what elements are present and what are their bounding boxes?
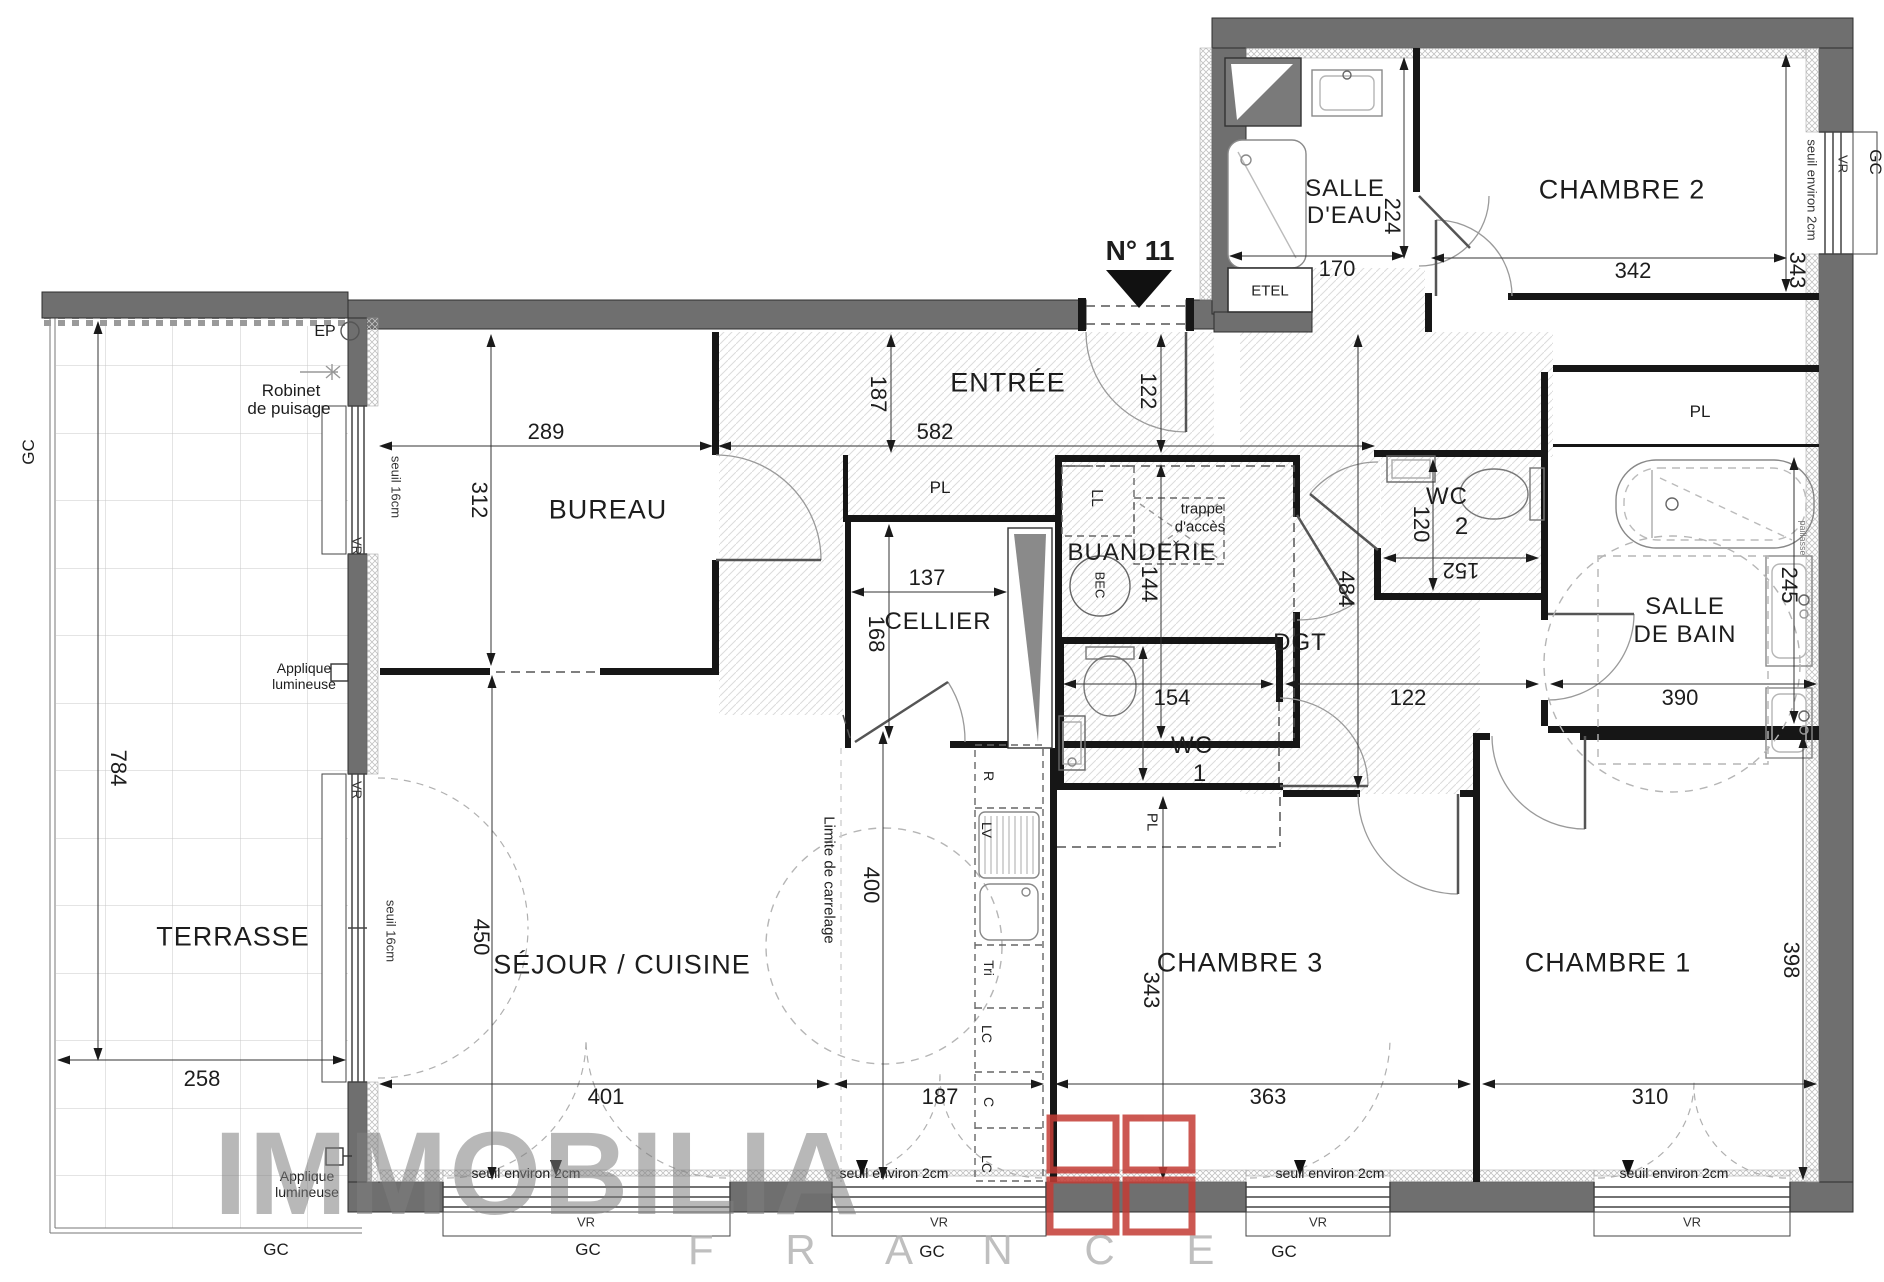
room-label-wc1-number: 1 xyxy=(1193,760,1207,788)
room-label-cellier: CELLIER xyxy=(884,608,991,636)
appliance-label-r: R xyxy=(981,771,997,781)
trappe-label-2: d'accès xyxy=(1175,519,1225,536)
seuil2-ch1: seuil environ 2cm xyxy=(1620,1165,1729,1181)
dim-400: 400 xyxy=(858,867,884,904)
appliance-label-c: C xyxy=(981,1097,997,1107)
dim-484: 484 xyxy=(1333,571,1359,608)
ep-label: EP xyxy=(314,323,335,341)
room-label-salle-deau-1: SALLE xyxy=(1305,175,1385,203)
room-label-wc2-number: 2 xyxy=(1455,513,1469,541)
room-label-dgt: DGT xyxy=(1273,629,1327,657)
dim-144: 144 xyxy=(1136,566,1162,603)
dim-258: 258 xyxy=(184,1066,221,1092)
dim-122-entree: 122 xyxy=(1135,373,1161,410)
closet-label-pl-sdb: PL xyxy=(1690,402,1711,422)
dim-398: 398 xyxy=(1778,942,1804,979)
dim-312: 312 xyxy=(466,482,492,519)
robinet-label-2: de puisage xyxy=(247,399,330,419)
watermark-brand: IMMOBILIA xyxy=(214,1106,861,1242)
dim-170: 170 xyxy=(1319,256,1356,282)
dim-343-ch2: 343 xyxy=(1784,252,1810,289)
gc-left: GC xyxy=(19,439,39,465)
dim-187-bottom: 187 xyxy=(922,1084,959,1110)
appliance-label-tri: Tri xyxy=(981,960,997,976)
seuil16-bureau: seuil 16cm xyxy=(389,456,404,518)
gc-bottom-ch3: GC xyxy=(1271,1242,1297,1262)
room-label-chambre2: CHAMBRE 2 xyxy=(1539,175,1706,206)
closet-label-pl-entree: PL xyxy=(930,478,951,498)
dim-137: 137 xyxy=(909,565,946,591)
appliance-label-lc2: LC xyxy=(979,1155,995,1173)
dim-343-ch3: 343 xyxy=(1138,972,1164,1009)
trappe-x-marker: × xyxy=(1172,536,1180,551)
gc-right: GC xyxy=(1865,149,1884,175)
dim-390: 390 xyxy=(1662,685,1699,711)
dim-289: 289 xyxy=(528,419,565,445)
dim-168: 168 xyxy=(863,616,889,653)
room-label-sejour-cuisine: SÉJOUR / CUISINE xyxy=(493,950,751,981)
floor-plan: TERRASSE BUREAU ENTRÉE SÉJOUR / CUISINE … xyxy=(0,0,1884,1282)
room-label-bureau: BUREAU xyxy=(549,495,668,526)
dim-187-entree: 187 xyxy=(865,376,891,413)
applique-top-label-2: lumineuse xyxy=(272,676,336,692)
applique-top-label-1: Applique xyxy=(277,660,332,676)
dim-582: 582 xyxy=(917,419,954,445)
vr-bottom-ch3: VR xyxy=(1309,1215,1327,1230)
dim-310: 310 xyxy=(1632,1084,1669,1110)
unit-number: N° 11 xyxy=(1106,235,1175,267)
dim-224: 224 xyxy=(1379,198,1405,235)
room-label-terrasse: TERRASSE xyxy=(156,922,310,953)
watermark-country: F R A N C E xyxy=(688,1226,1244,1274)
dim-245: 245 xyxy=(1776,567,1802,604)
paillasse-label: paillasse xyxy=(1798,520,1808,555)
appliance-label-bec: BEC xyxy=(1093,572,1108,599)
limite-carrelage-label: Limite de carrelage xyxy=(821,816,838,944)
room-label-chambre1: CHAMBRE 1 xyxy=(1525,948,1692,979)
vr-left-sejour: VR xyxy=(350,781,365,799)
appliance-label-lc1: LC xyxy=(979,1025,995,1043)
terrace-floor xyxy=(42,300,362,1233)
gc-bottom-terrasse: GC xyxy=(263,1240,289,1260)
dim-363: 363 xyxy=(1250,1084,1287,1110)
gc-bottom-sejour: GC xyxy=(575,1240,601,1260)
room-label-entree: ENTRÉE xyxy=(950,368,1066,399)
appliance-label-ll: LL xyxy=(1087,489,1105,507)
dim-120: 120 xyxy=(1408,506,1434,543)
seuil2-right-ch2: seuil environ 2cm xyxy=(1805,139,1820,240)
appliance-label-lv: LV xyxy=(979,822,995,838)
room-label-salle-de-bain-2: DE BAIN xyxy=(1633,621,1736,649)
room-label-chambre3: CHAMBRE 3 xyxy=(1157,948,1324,979)
trappe-label-1: trappe xyxy=(1181,501,1224,518)
room-label-wc1: WC xyxy=(1171,732,1213,760)
dim-122-dgt: 122 xyxy=(1390,685,1427,711)
dim-784: 784 xyxy=(105,750,131,787)
vr-right-ch2: VR xyxy=(1836,155,1851,173)
vr-left-bureau: VR xyxy=(350,537,365,555)
vr-bottom-ch1: VR xyxy=(1683,1215,1701,1230)
seuil16-sejour: seuil 16cm xyxy=(384,900,399,962)
dim-154: 154 xyxy=(1154,685,1191,711)
seuil2-ch3: seuil environ 2cm xyxy=(1276,1165,1385,1181)
room-label-salle-deau-2: D'EAU xyxy=(1307,202,1383,230)
dim-152: 152 xyxy=(1443,557,1480,583)
closet-label-pl-ch3: PL xyxy=(1144,813,1161,831)
closet-label-etel: ETEL xyxy=(1251,283,1289,300)
dim-450: 450 xyxy=(468,919,494,956)
robinet-label-1: Robinet xyxy=(262,381,321,401)
dim-342: 342 xyxy=(1615,258,1652,284)
room-label-salle-de-bain-1: SALLE xyxy=(1645,593,1725,621)
room-label-buanderie: BUANDERIE xyxy=(1067,539,1216,567)
